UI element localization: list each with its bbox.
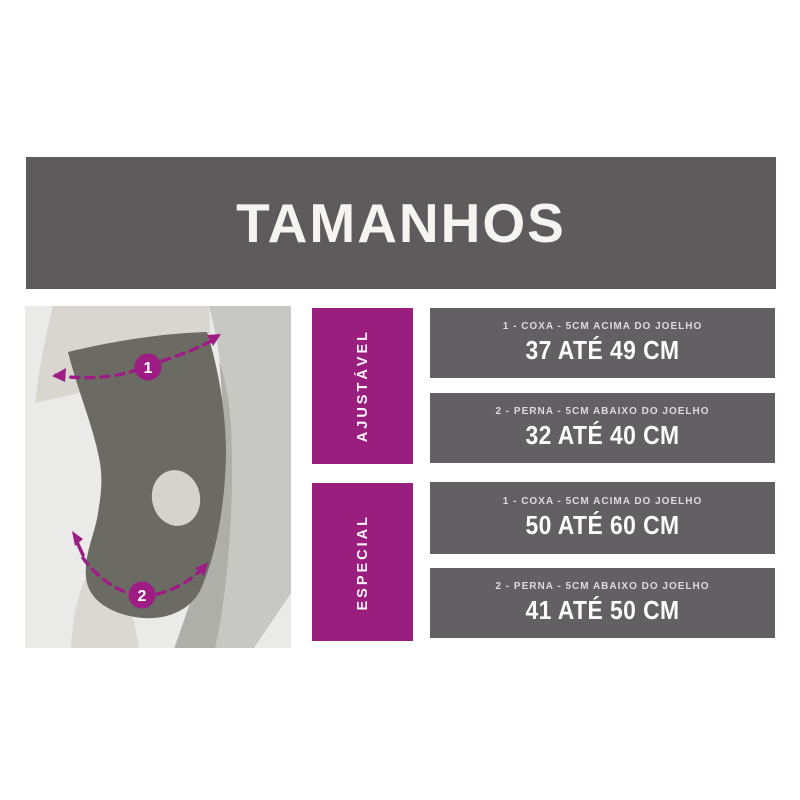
measure-location-label: 1 - COXA - 5CM ACIMA DO JOELHO [503,321,702,332]
size-bar-ajustavel-coxa: 1 - COXA - 5CM ACIMA DO JOELHO 37 ATÉ 49… [430,308,775,378]
measure-location-label: 1 - COXA - 5CM ACIMA DO JOELHO [503,496,702,507]
knee-diagram-svg: 1 2 [25,306,291,648]
size-bar-especial-perna: 2 - PERNA - 5CM ABAIXO DO JOELHO 41 ATÉ … [430,568,775,638]
group-label-text: AJUSTÁVEL [355,329,371,442]
measure-location-label: 2 - PERNA - 5CM ABAIXO DO JOELHO [495,581,709,592]
size-bar-especial-coxa: 1 - COXA - 5CM ACIMA DO JOELHO 50 ATÉ 60… [430,482,775,554]
measure-range-value: 37 ATÉ 49 CM [525,335,679,366]
size-group-label-ajustavel: AJUSTÁVEL [312,308,413,464]
page-title: TAMANHOS [236,191,566,255]
measure-range-value: 50 ATÉ 60 CM [525,510,679,541]
measure-range-value: 32 ATÉ 40 CM [525,420,679,451]
group-label-text: ESPECIAL [355,514,371,611]
size-bar-ajustavel-perna: 2 - PERNA - 5CM ABAIXO DO JOELHO 32 ATÉ … [430,393,775,463]
size-group-label-especial: ESPECIAL [312,483,413,641]
marker-number-1: 1 [144,360,153,377]
marker-number-2: 2 [138,588,147,605]
measure-range-value: 41 ATÉ 50 CM [525,595,679,626]
size-chart-infographic: TAMANHOS [0,0,800,800]
measure-location-label: 2 - PERNA - 5CM ABAIXO DO JOELHO [495,406,709,417]
knee-measurement-diagram: 1 2 [25,306,291,648]
title-banner: TAMANHOS [26,157,776,289]
